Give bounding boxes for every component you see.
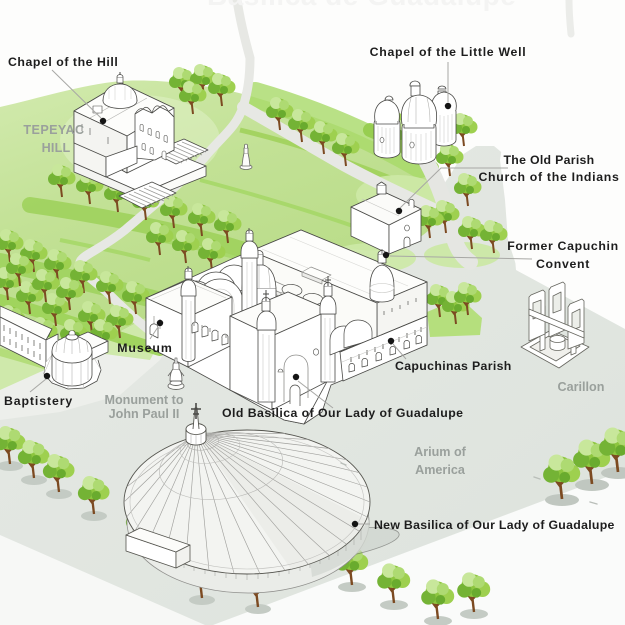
svg-text:Capuchinas Parish: Capuchinas Parish — [395, 359, 512, 373]
svg-text:Basilica de Guadalupe: Basilica de Guadalupe — [207, 0, 516, 11]
svg-text:Chapel of the Hill: Chapel of the Hill — [8, 55, 118, 69]
svg-text:TEPEYAC: TEPEYAC — [23, 123, 84, 137]
svg-text:Museum: Museum — [117, 341, 173, 355]
svg-text:Church of the Indians: Church of the Indians — [478, 170, 619, 184]
svg-text:Old Basilica of Our Lady of Gu: Old Basilica of Our Lady of Guadalupe — [222, 406, 463, 420]
svg-text:Former Capuchin: Former Capuchin — [507, 239, 619, 253]
svg-text:Baptistery: Baptistery — [4, 394, 73, 408]
svg-text:Monument to: Monument to — [104, 393, 183, 407]
svg-text:Convent: Convent — [536, 257, 590, 271]
svg-text:Arium of: Arium of — [414, 445, 467, 459]
svg-text:HILL: HILL — [42, 141, 71, 155]
svg-text:New Basilica of Our Lady of Gu: New Basilica of Our Lady of Guadalupe — [374, 518, 615, 532]
svg-text:The Old Parish: The Old Parish — [504, 153, 595, 167]
svg-text:John Paul II: John Paul II — [109, 407, 180, 421]
svg-text:Carillon: Carillon — [558, 380, 605, 394]
svg-text:America: America — [415, 463, 466, 477]
svg-text:Chapel of the Little Well: Chapel of the Little Well — [370, 45, 527, 59]
